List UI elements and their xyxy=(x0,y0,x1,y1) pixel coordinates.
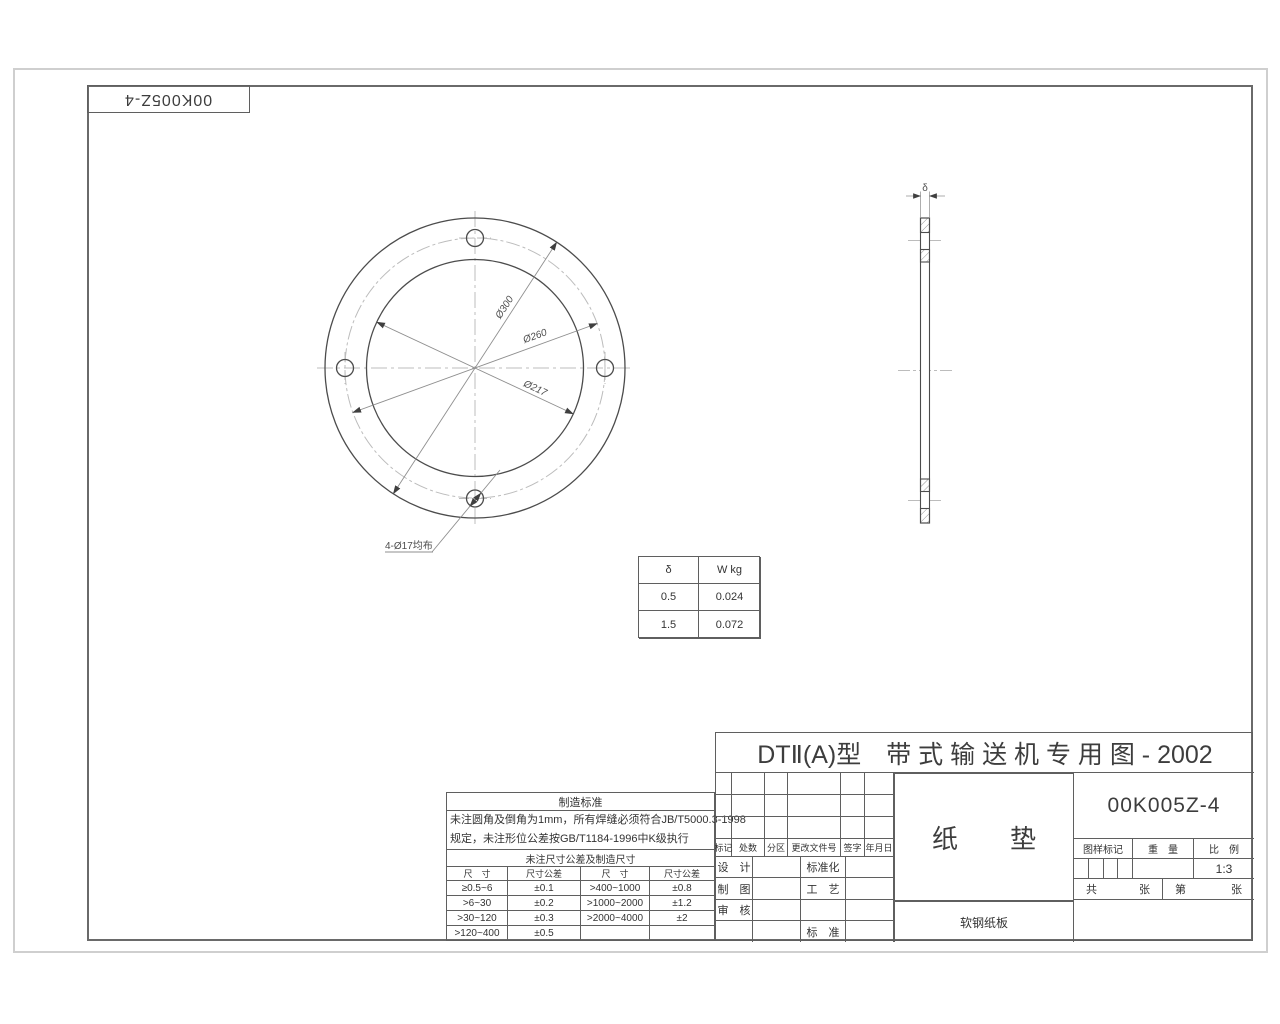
signature-cell xyxy=(846,900,894,921)
weight-table: δ W kg 0.5 0.024 1.5 0.072 xyxy=(638,556,760,638)
revision-cell xyxy=(716,795,732,817)
blank-cell xyxy=(1074,900,1254,942)
role-label-process: 工 艺 xyxy=(801,878,846,900)
revision-cell xyxy=(788,795,841,817)
revision-header: 签字 xyxy=(841,839,865,857)
revision-cell xyxy=(841,795,865,817)
tolerance-cell: >1000~2000 xyxy=(581,896,650,911)
sheet-total-label: 共 xyxy=(1086,881,1097,897)
tolerance-cell: ±0.8 xyxy=(650,881,714,896)
tolerance-cell: ±0.5 xyxy=(508,926,581,940)
sheet-count-row: 共 张 第 张 xyxy=(1074,879,1254,900)
mark-cell xyxy=(1089,859,1104,879)
tolerance-table-title: 未注尺寸公差及制造尺寸 xyxy=(447,849,714,867)
signature-cell xyxy=(753,900,801,921)
revision-cell xyxy=(765,773,788,795)
sheet-total-unit: 张 xyxy=(1139,881,1150,897)
role-label-design: 设 计 xyxy=(716,857,753,878)
scale-label: 比 例 xyxy=(1194,839,1254,859)
tolerance-cell: >2000~4000 xyxy=(581,911,650,926)
signature-cell xyxy=(753,921,801,942)
material-cell: 软钢纸板 xyxy=(894,901,1074,942)
tolerance-cell: ±1.2 xyxy=(650,896,714,911)
tolerance-cell xyxy=(650,926,714,940)
thickness-dimension xyxy=(906,192,945,218)
weight-table-cell: 0.024 xyxy=(699,584,761,611)
revision-cell xyxy=(865,795,894,817)
weight-label: 重 量 xyxy=(1133,839,1194,859)
scale-value: 1:3 xyxy=(1194,859,1254,879)
signature-cell xyxy=(846,878,894,900)
revision-cell xyxy=(716,773,732,795)
revision-cell xyxy=(716,817,732,839)
part-name: 纸 垫 xyxy=(932,819,1036,856)
tolerance-col-header: 尺 寸 xyxy=(581,867,650,881)
revision-cell xyxy=(865,773,894,795)
revision-history-grid xyxy=(716,773,894,839)
revision-cell xyxy=(765,817,788,839)
revision-cell xyxy=(732,773,765,795)
part-name-cell: 纸 垫 xyxy=(894,773,1074,901)
thickness-label: δ xyxy=(922,183,928,194)
holes-note-label: 4-Ø17均布 xyxy=(385,540,433,552)
revision-header: 分区 xyxy=(765,839,788,857)
revision-cell xyxy=(841,817,865,839)
signature-cell xyxy=(801,900,846,921)
tolerance-cell: >400~1000 xyxy=(581,881,650,896)
weight-value-cell xyxy=(1133,859,1194,879)
standards-note-line1: 未注圆角及倒角为1mm，所有焊缝必须符合JB/T5000.3-1998 xyxy=(450,811,746,830)
mark-weight-scale-row: 图样标记 重 量 比 例 xyxy=(1074,839,1254,859)
tolerance-col-header: 尺寸公差 xyxy=(650,867,714,881)
dim-outer-diameter: Ø300 xyxy=(493,294,516,322)
weight-table-cell: 0.5 xyxy=(639,584,699,611)
sheet-total-cell: 共 张 xyxy=(1074,879,1163,900)
drawing-series-title: DTⅡ(A)型 带 式 输 送 机 专 用 图 - 2002 xyxy=(716,733,1254,773)
sheet-number-unit: 张 xyxy=(1231,881,1242,897)
title-block: DTⅡ(A)型 带 式 输 送 机 专 用 图 - 2002 标记 处数 分区 … xyxy=(715,732,1253,941)
standards-block: 制造标准 未注圆角及倒角为1mm，所有焊缝必须符合JB/T5000.3-1998… xyxy=(446,792,715,941)
tolerance-cell: >120~400 xyxy=(447,926,508,940)
weight-table-header-thickness: δ xyxy=(639,557,699,584)
drawing-page: 00K005Z-4 xyxy=(0,0,1280,1024)
signature-cell xyxy=(716,921,753,942)
revision-header: 年月日 xyxy=(865,839,894,857)
material-name: 软钢纸板 xyxy=(960,914,1008,931)
tolerance-cell: ±0.2 xyxy=(508,896,581,911)
side-view-section xyxy=(921,218,930,523)
sheet-number-cell: 第 张 xyxy=(1163,879,1254,900)
tolerance-table: 尺 寸 尺寸公差 尺 寸 尺寸公差 ≥0.5~6 ±0.1 >400~1000 … xyxy=(447,867,714,940)
revision-header-row: 标记 处数 分区 更改文件号 签字 年月日 xyxy=(716,839,894,857)
mark-cell xyxy=(1104,859,1118,879)
tolerance-cell: >6~30 xyxy=(447,896,508,911)
pattern-mark-label: 图样标记 xyxy=(1074,839,1133,859)
revision-cell xyxy=(788,817,841,839)
role-label-check: 审 核 xyxy=(716,900,753,921)
revision-header: 更改文件号 xyxy=(788,839,841,857)
mark-value-row: 1:3 xyxy=(1074,859,1254,879)
revision-cell xyxy=(788,773,841,795)
drawing-number: 00K005Z-4 xyxy=(1108,794,1221,818)
role-label-drafting: 制 图 xyxy=(716,878,753,900)
signature-cell xyxy=(846,857,894,878)
revision-cell xyxy=(732,795,765,817)
front-view-dimensions xyxy=(353,242,597,552)
revision-cell xyxy=(865,817,894,839)
tolerance-cell: >30~120 xyxy=(447,911,508,926)
signature-cell xyxy=(753,857,801,878)
role-label-standardization: 标准化 xyxy=(801,857,846,878)
drawing-number-cell: 00K005Z-4 xyxy=(1074,773,1254,839)
sheet-number-label: 第 xyxy=(1175,881,1186,897)
signature-cell xyxy=(753,878,801,900)
mark-cell xyxy=(1074,859,1089,879)
standards-note-line2: 规定，未注形位公差按GB/T1184-1996中K级执行 xyxy=(450,830,689,849)
tolerance-cell: ≥0.5~6 xyxy=(447,881,508,896)
weight-table-header-weight: W kg xyxy=(699,557,761,584)
tolerance-col-header: 尺寸公差 xyxy=(508,867,581,881)
dim-bolt-circle-diameter: Ø260 xyxy=(521,327,549,346)
tolerance-cell: ±0.1 xyxy=(508,881,581,896)
mark-cell xyxy=(1118,859,1133,879)
role-label-standard: 标 准 xyxy=(801,921,846,942)
revision-cell xyxy=(765,795,788,817)
tolerance-col-header: 尺 寸 xyxy=(447,867,508,881)
weight-table-cell: 1.5 xyxy=(639,611,699,639)
revision-cell xyxy=(732,817,765,839)
revision-header: 处数 xyxy=(732,839,765,857)
standards-title: 制造标准 xyxy=(447,793,714,811)
revision-header: 标记 xyxy=(716,839,732,857)
signature-cell xyxy=(846,921,894,942)
weight-table-cell: 0.072 xyxy=(699,611,761,639)
tolerance-cell xyxy=(581,926,650,940)
signature-grid: 设 计 标准化 制 图 工 艺 审 核 标 准 xyxy=(716,857,894,942)
tolerance-cell: ±0.3 xyxy=(508,911,581,926)
tolerance-cell: ±2 xyxy=(650,911,714,926)
revision-cell xyxy=(841,773,865,795)
